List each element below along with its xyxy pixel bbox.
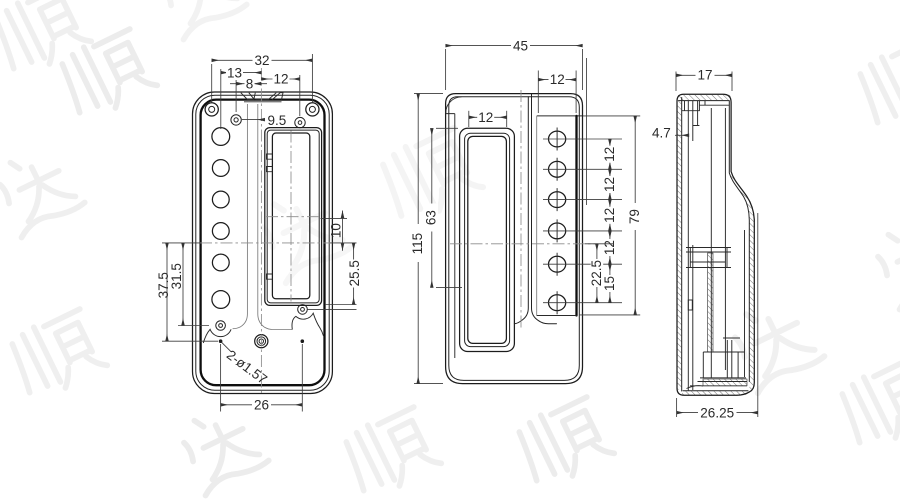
- svg-text:79: 79: [627, 209, 642, 224]
- svg-text:13: 13: [227, 66, 242, 81]
- svg-text:12: 12: [602, 147, 617, 162]
- svg-text:26: 26: [254, 397, 269, 412]
- svg-text:26.25: 26.25: [700, 405, 734, 420]
- svg-text:2-ø1.57: 2-ø1.57: [224, 347, 270, 387]
- svg-text:63: 63: [424, 210, 439, 225]
- svg-text:12: 12: [273, 72, 288, 87]
- svg-text:4.7: 4.7: [652, 126, 671, 141]
- svg-text:115: 115: [410, 233, 425, 255]
- svg-text:12: 12: [602, 208, 617, 223]
- svg-text:9.5: 9.5: [268, 113, 287, 128]
- svg-text:12: 12: [602, 240, 617, 255]
- svg-text:22.5: 22.5: [589, 260, 604, 286]
- svg-text:12: 12: [550, 72, 565, 87]
- svg-text:45: 45: [513, 39, 528, 54]
- svg-text:12: 12: [602, 177, 617, 192]
- svg-text:17: 17: [697, 67, 712, 82]
- svg-text:31.5: 31.5: [169, 263, 184, 289]
- svg-text:8: 8: [246, 77, 254, 92]
- svg-text:12: 12: [478, 110, 493, 125]
- svg-text:15: 15: [602, 276, 617, 291]
- svg-text:32: 32: [254, 53, 269, 68]
- svg-text:10: 10: [329, 223, 344, 238]
- svg-text:25.5: 25.5: [347, 260, 362, 286]
